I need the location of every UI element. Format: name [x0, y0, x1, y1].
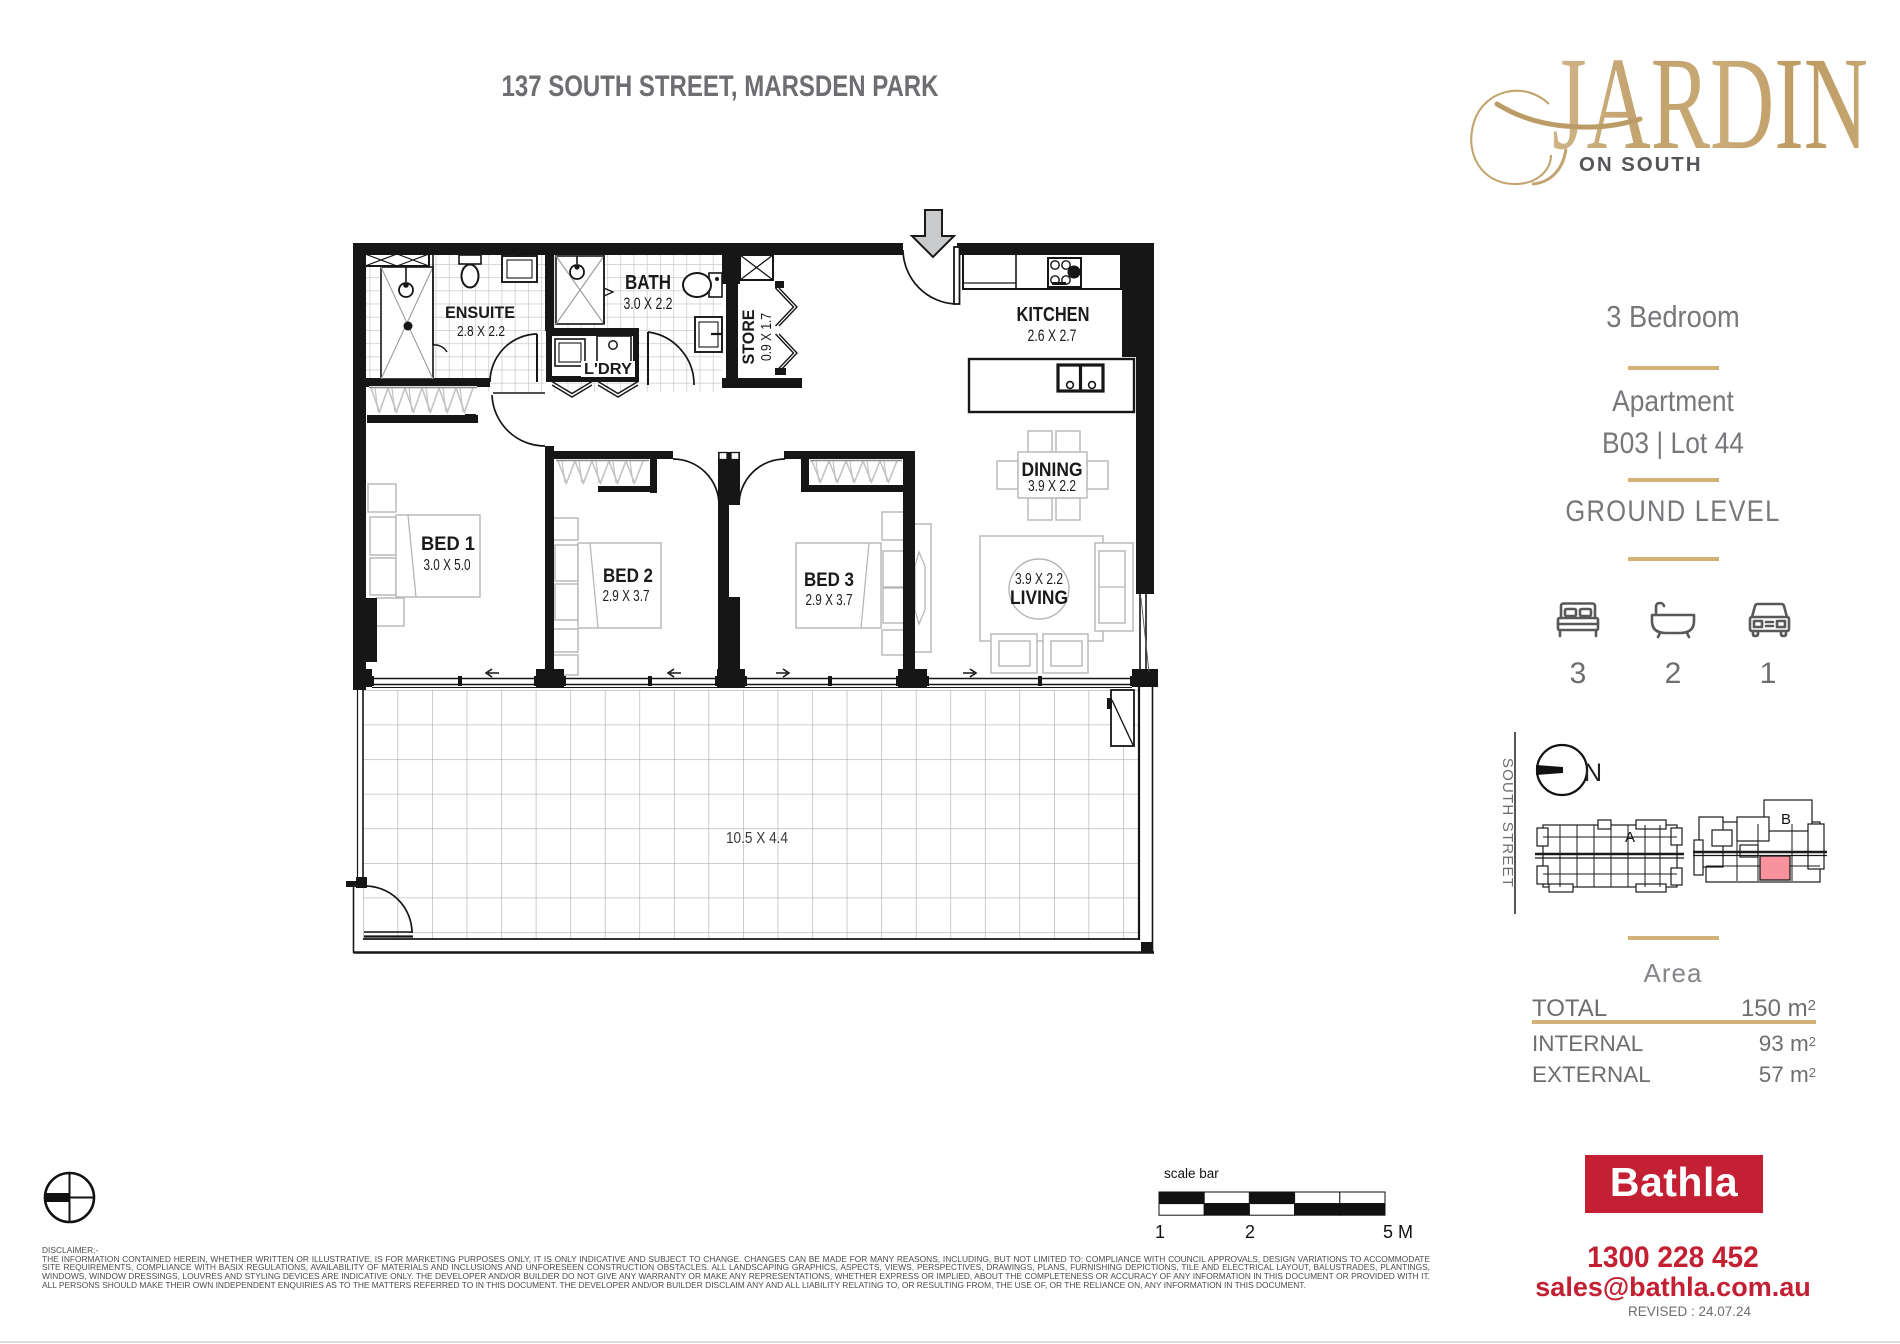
svg-text:3.0 X 2.2: 3.0 X 2.2 [624, 294, 673, 313]
svg-text:N: N [1584, 759, 1602, 787]
svg-text:L'DRY: L'DRY [584, 361, 632, 378]
svg-text:3.9 X 2.2: 3.9 X 2.2 [1015, 571, 1063, 588]
svg-text:2.6 X 2.7: 2.6 X 2.7 [1028, 326, 1077, 345]
svg-text:A: A [1625, 829, 1635, 846]
svg-text:BATH: BATH [625, 272, 671, 294]
svg-text:0.9 X 1.7: 0.9 X 1.7 [758, 313, 775, 361]
svg-text:ENSUITE: ENSUITE [445, 303, 515, 322]
svg-text:ON SOUTH: ON SOUTH [1579, 153, 1702, 176]
svg-text:SOUTH STREET: SOUTH STREET [1499, 758, 1516, 888]
svg-text:2.9 X 3.7: 2.9 X 3.7 [806, 592, 853, 609]
svg-text:1: 1 [1155, 1222, 1165, 1242]
svg-text:BED 1: BED 1 [421, 534, 475, 555]
svg-text:LIVING: LIVING [1010, 588, 1068, 609]
svg-text:10.5 X 4.4: 10.5 X 4.4 [726, 830, 788, 847]
svg-text:B: B [1781, 811, 1791, 828]
svg-text:KITCHEN: KITCHEN [1017, 304, 1090, 326]
svg-text:2.8 X 2.2: 2.8 X 2.2 [457, 323, 505, 340]
svg-text:3.9 X 2.2: 3.9 X 2.2 [1028, 478, 1076, 495]
svg-text:BED 3: BED 3 [804, 570, 854, 591]
svg-text:5 M: 5 M [1383, 1222, 1413, 1242]
svg-text:scale bar: scale bar [1164, 1166, 1219, 1181]
svg-text:2.9 X 3.7: 2.9 X 3.7 [603, 588, 650, 605]
svg-text:BED 2: BED 2 [603, 566, 653, 587]
svg-text:3.0 X 5.0: 3.0 X 5.0 [424, 557, 471, 574]
svg-text:2: 2 [1245, 1222, 1255, 1242]
svg-text:STORE: STORE [739, 310, 758, 365]
